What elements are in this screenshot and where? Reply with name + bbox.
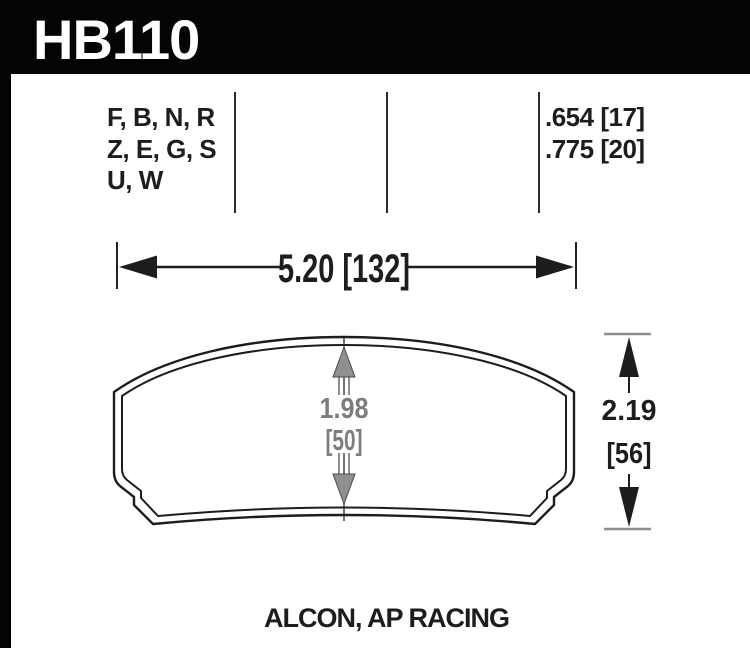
arrow-up-icon [333,347,355,377]
overall-height-in-label: 2.19 [602,395,657,427]
arrow-down-icon [333,474,355,504]
friction-height-mm-label: [50] [326,425,363,457]
width-dimension: 5.20 [132] [117,242,576,291]
overall-height-dimension: 2.19 [56] [602,334,657,529]
arrow-down-icon [619,487,639,527]
arrow-up-icon [619,337,639,377]
caliper-applications-caption: ALCON, AP RACING [264,603,509,634]
arrow-right-icon [536,256,574,279]
friction-height-dimension: 1.98 [50] [320,338,369,521]
spec-sheet: HB110 F, B, N, R Z, E, G, S U, W .654 [1… [0,0,750,648]
overall-height-mm-label: [56] [607,438,652,470]
friction-height-in-label: 1.98 [320,393,369,425]
arrow-left-icon [119,256,157,279]
pad-diagram: 5.20 [132] 1.98 [50] 2 [0,0,750,648]
width-dimension-label: 5.20 [132] [278,247,410,291]
